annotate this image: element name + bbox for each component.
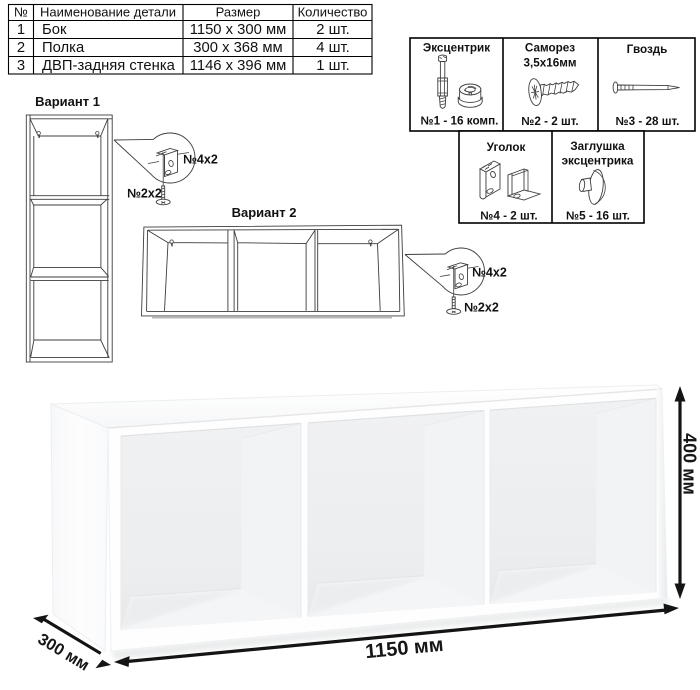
svg-text:№: №	[14, 5, 28, 20]
svg-text:3: 3	[17, 58, 25, 74]
svg-text:Гвоздь: Гвоздь	[627, 43, 668, 56]
svg-text:эксцентрика: эксцентрика	[562, 155, 634, 168]
svg-text:Полка: Полка	[42, 40, 85, 56]
svg-text:№4х2: №4х2	[183, 153, 218, 167]
svg-text:Заглушка: Заглушка	[570, 140, 625, 153]
svg-text:ДВП-задняя стенка: ДВП-задняя стенка	[42, 58, 176, 74]
svg-text:Вариант 1: Вариант 1	[35, 94, 100, 109]
svg-text:Вариант 2: Вариант 2	[232, 205, 297, 220]
svg-text:Бок: Бок	[42, 22, 67, 38]
svg-text:1: 1	[17, 22, 25, 38]
svg-text:№3 - 28 шт.: №3 - 28 шт.	[616, 115, 680, 128]
svg-text:1 шт.: 1 шт.	[316, 58, 349, 74]
svg-text:Размер: Размер	[216, 5, 261, 20]
svg-text:Саморез: Саморез	[525, 42, 575, 55]
svg-text:№2х2: №2х2	[127, 187, 162, 201]
svg-text:№4х2: №4х2	[472, 266, 507, 280]
svg-text:400 мм: 400 мм	[680, 433, 700, 495]
svg-text:2: 2	[17, 40, 25, 56]
svg-text:Эксцентрик: Эксцентрик	[423, 42, 490, 55]
svg-text:№1 - 16 комп.: №1 - 16 комп.	[421, 115, 499, 128]
svg-text:№5 - 16 шт.: №5 - 16 шт.	[566, 210, 630, 223]
svg-text:4 шт.: 4 шт.	[316, 40, 349, 56]
svg-text:300 х 368 мм: 300 х 368 мм	[193, 40, 282, 56]
svg-text:2 шт.: 2 шт.	[316, 22, 349, 38]
svg-text:№2 - 2 шт.: №2 - 2 шт.	[521, 115, 578, 128]
svg-text:1146 х 396 мм: 1146 х 396 мм	[190, 58, 287, 74]
svg-text:3,5х16мм: 3,5х16мм	[523, 57, 576, 70]
svg-text:Количество: Количество	[298, 5, 368, 20]
svg-text:Наименование детали: Наименование детали	[40, 5, 176, 20]
svg-text:№2х2: №2х2	[464, 301, 499, 315]
svg-text:№4 - 2 шт.: №4 - 2 шт.	[480, 210, 537, 223]
svg-text:1150 х 300 мм: 1150 х 300 мм	[190, 22, 287, 38]
svg-text:Уголок: Уголок	[487, 141, 526, 154]
